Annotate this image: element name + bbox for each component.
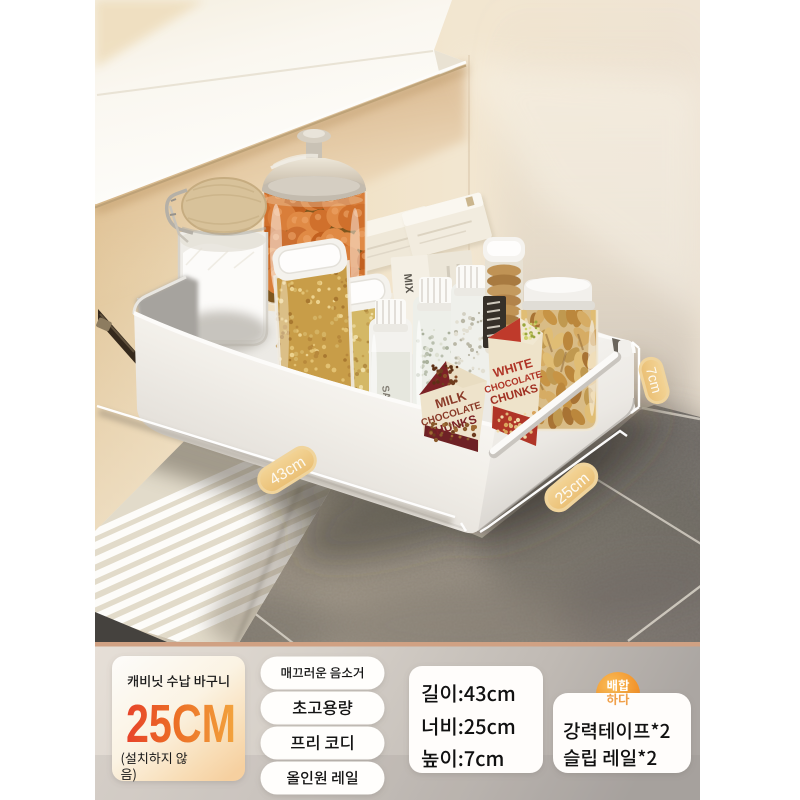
svg-text:25CM: 25CM: [126, 694, 236, 754]
svg-text:MIX: MIX: [401, 273, 415, 294]
